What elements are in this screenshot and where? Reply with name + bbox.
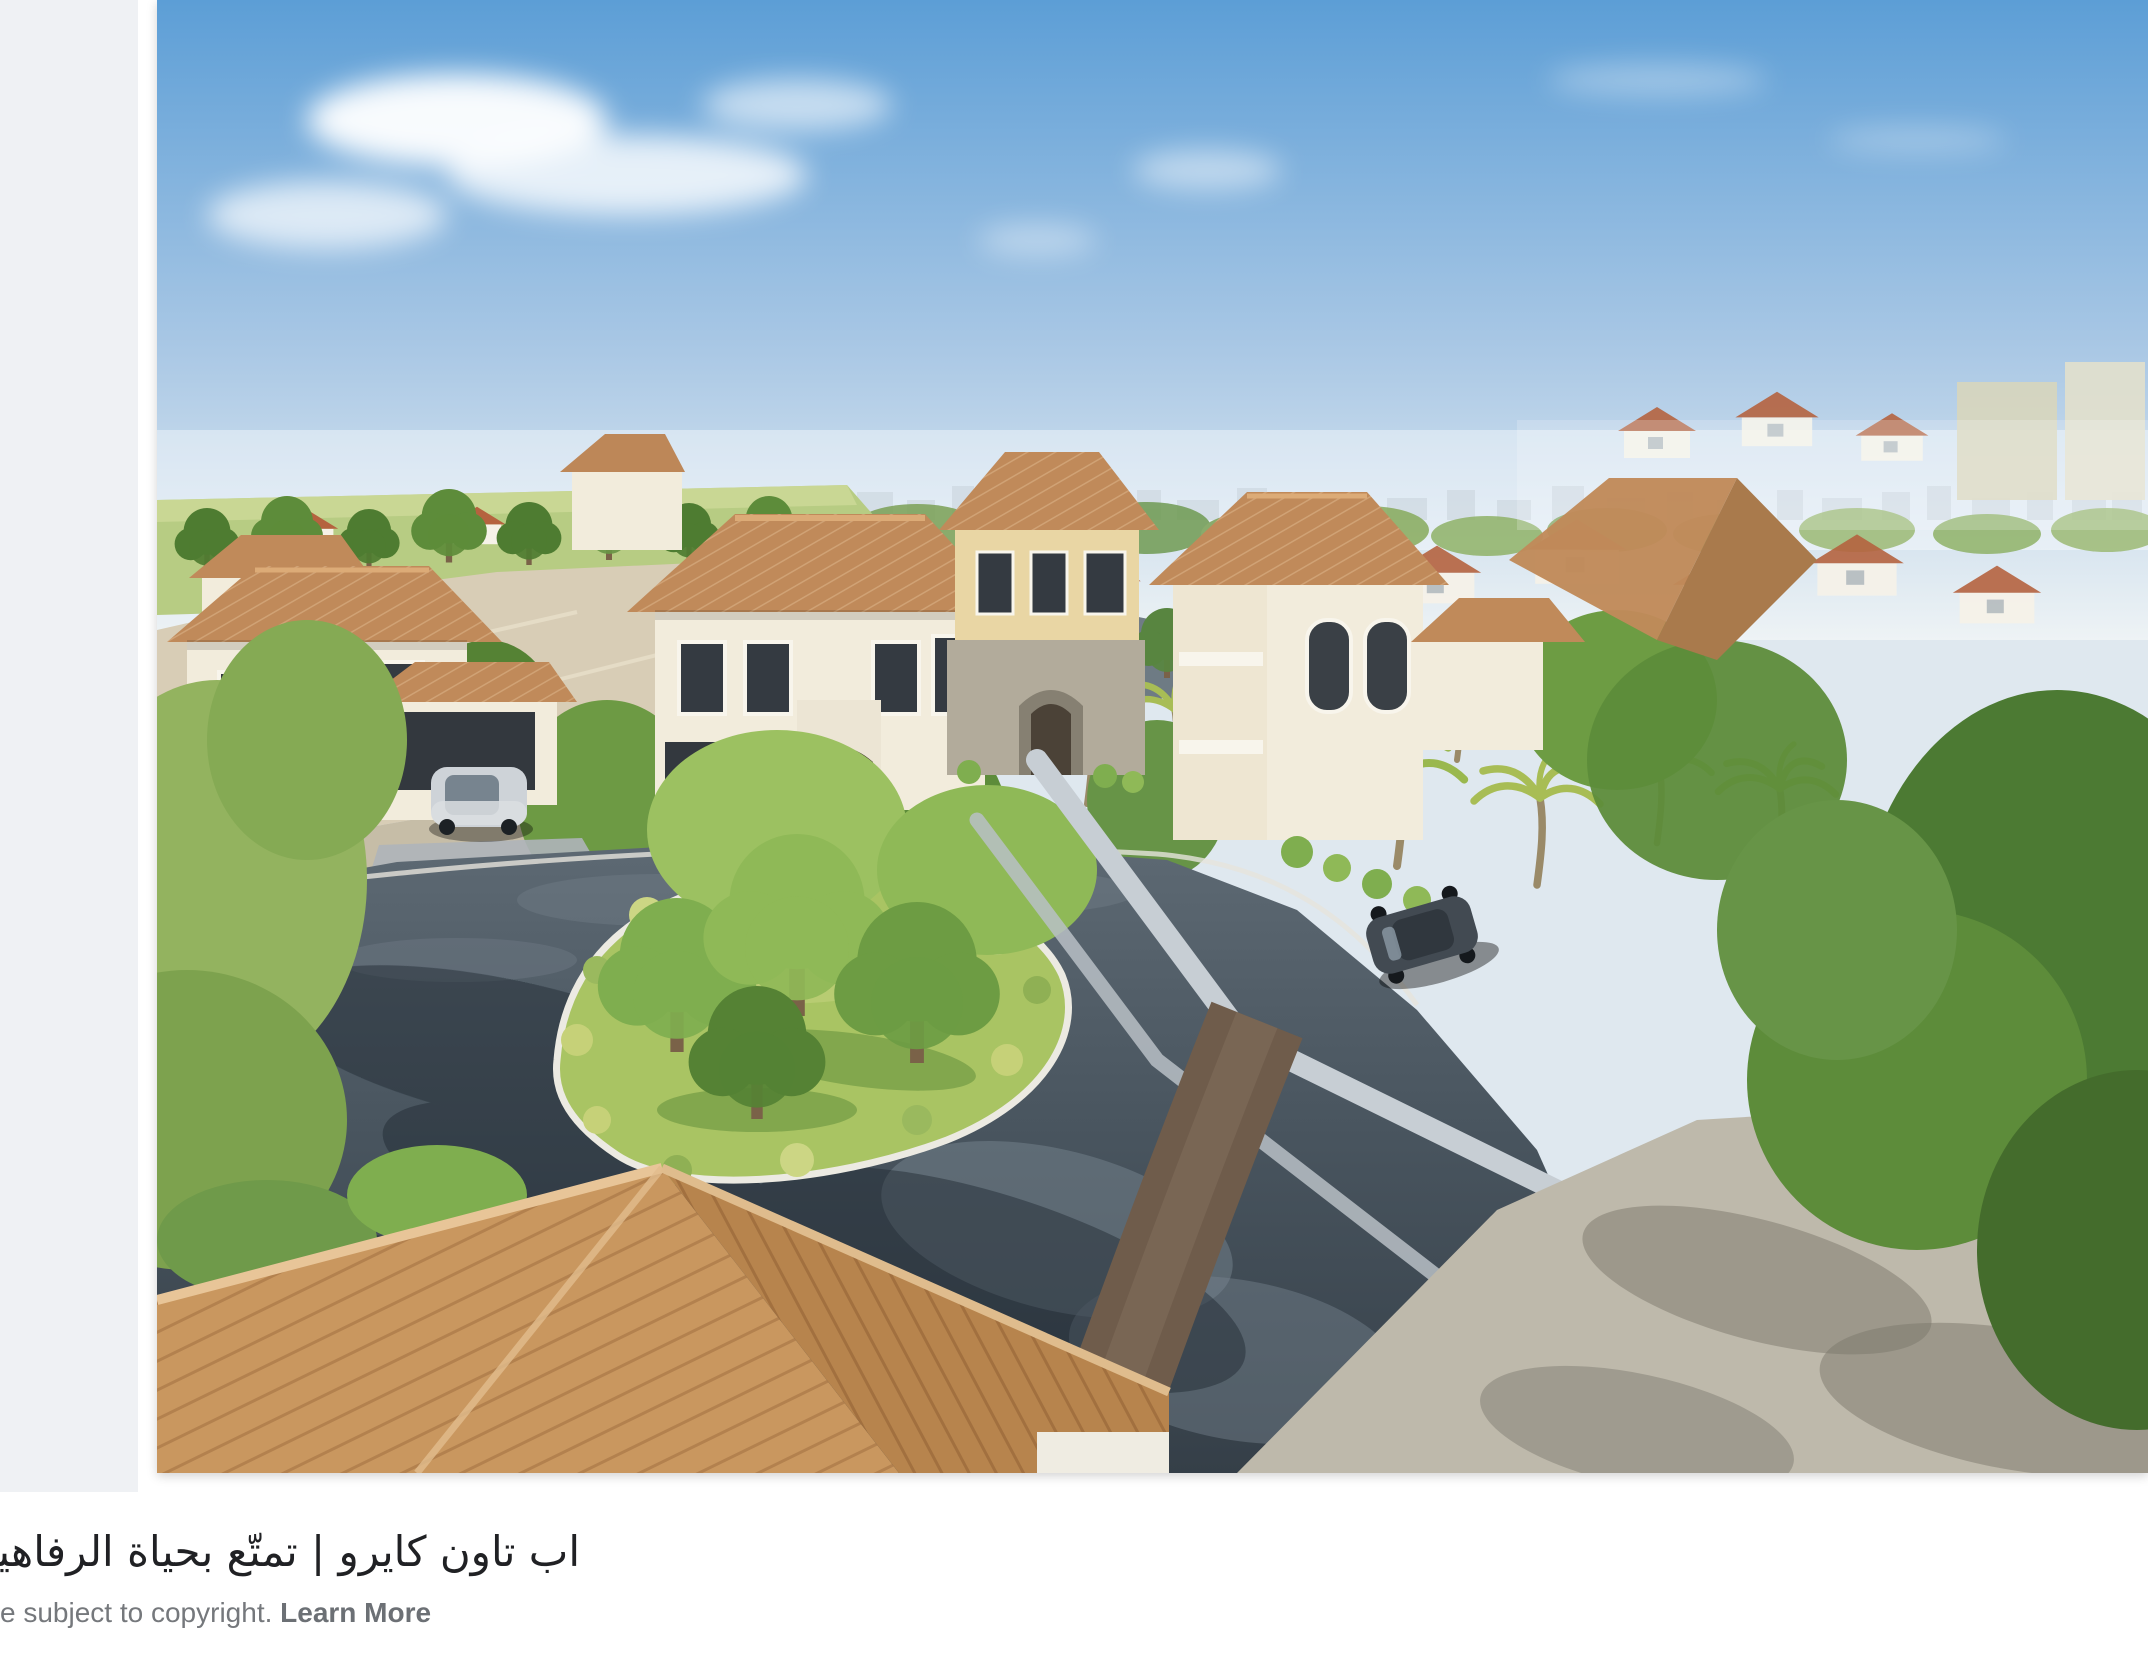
image-title-link[interactable]: اب تاون كايرو | تمتّع بحياة الرفاهية فى …	[0, 1526, 580, 1579]
copyright-note: e subject to copyright. Learn More	[0, 1596, 431, 1630]
google-images-preview-page: اب تاون كايرو | تمتّع بحياة الرفاهية فى …	[0, 0, 2148, 1653]
learn-more-link[interactable]: Learn More	[280, 1597, 431, 1628]
results-panel-background	[0, 0, 138, 1492]
minivan-car	[429, 767, 533, 842]
copyright-text: e subject to copyright.	[0, 1597, 280, 1628]
preview-image[interactable]	[157, 0, 2148, 1473]
villa-compound-render	[157, 0, 2148, 1473]
beige-villa	[939, 452, 1159, 793]
